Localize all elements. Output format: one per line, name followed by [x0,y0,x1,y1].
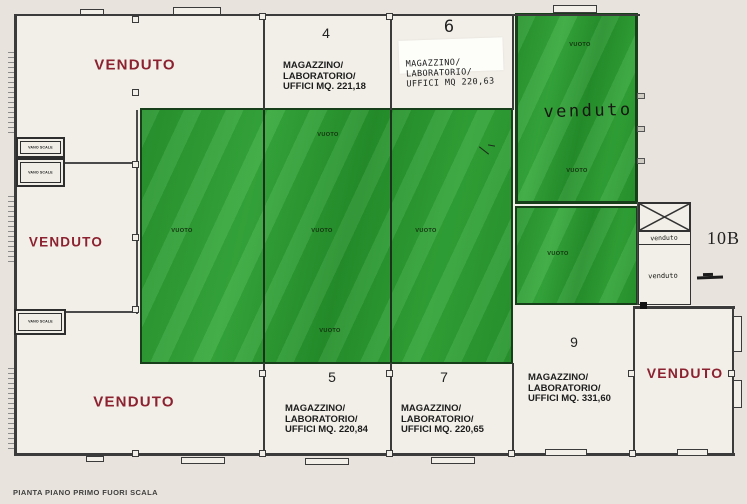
unit-9-number: 9 [570,334,578,350]
unit-4-line3: UFFICI MQ. 221,18 [283,82,366,93]
unit-5-line3: UFFICI MQ. 220,84 [285,425,368,436]
sold-label-mid-left: VENDUTO [29,235,103,250]
wall-left-room-divider [64,311,139,313]
vuoto-label: VUOTO [317,132,338,138]
wall-green-divider-right [390,110,392,362]
pilaster [132,161,139,168]
pilaster [629,450,636,457]
wall-bottom-right-room-top [633,306,735,309]
sold-box-1-label: venduto [650,234,678,243]
pilaster [728,370,735,377]
pilaster [132,89,139,96]
unit-6-description: MAGAZZINO/ LABORATORIO/ UFFICI MQ 220,63 [406,56,495,89]
window-bottom-3 [305,458,349,465]
wall-unit6-right [512,14,514,110]
wall-unit4-left [263,14,265,110]
wall-bottom [14,453,735,456]
vuoto-label: VUOTO [415,228,436,234]
stairwell-box-3: VANO SCALE [14,309,66,335]
unit-4-number: 4 [322,25,330,41]
stairwell-box-2: VANO SCALE [16,158,65,187]
wall-tab-1 [637,93,645,99]
unit-6-number: 6 [444,17,454,37]
stairwell-label-1: VANO SCALE [28,146,53,150]
pilaster [259,13,266,20]
green-highlight-central-block [140,108,513,364]
unit-9-line1: MAGAZZINO/ [528,373,611,384]
sold-label-bottom-left: VENDUTO [93,394,174,411]
stairwell-box-1: VANO SCALE [16,137,65,158]
green-highlight-right-column [515,206,638,305]
vuoto-label: VUOTO [311,228,332,234]
wall-green-divider-left [263,110,265,362]
wall-junction-mark [640,302,647,309]
window-right-1 [733,316,742,352]
pilaster [132,450,139,457]
sold-label-top-left: VENDUTO [94,57,175,74]
sold-label-handwritten-top-right: venduto [543,100,633,122]
unit-7-number: 7 [440,369,448,385]
wall-stairwell-divider [64,162,138,164]
window-bottom-6 [677,449,708,456]
unit-9-description: MAGAZZINO/ LABORATORIO/ UFFICI MQ. 331,6… [528,373,611,405]
pilaster [386,370,393,377]
wall-unit9-right [633,306,635,454]
vuoto-label: VUOTO [319,328,340,334]
unit-7-line1: MAGAZZINO/ [401,404,484,415]
vuoto-label: VUOTO [547,251,568,257]
unit-4-line1: MAGAZZINO/ [283,61,366,72]
unit-7-description: MAGAZZINO/ LABORATORIO/ UFFICI MQ. 220,6… [401,404,484,436]
wall-left-strip [136,110,138,314]
unit-7-line3: UFFICI MQ. 220,65 [401,425,484,436]
vuoto-label: VUOTO [569,42,590,48]
window-top-2 [173,7,221,15]
pilaster [386,450,393,457]
pilaster [132,234,139,241]
stairwell-label-3: VANO SCALE [28,320,53,324]
pilaster [508,450,515,457]
external-unit-label: 10B [707,228,740,249]
stairwell-label-2: VANO SCALE [28,171,53,175]
window-bottom-4 [431,457,475,464]
plan-caption: PIANTA PIANO PRIMO FUORI SCALA [13,488,158,497]
sold-box-2-label: venduto [648,272,678,281]
pilaster [628,370,635,377]
unit-5-line1: MAGAZZINO/ [285,404,368,415]
crosshatch-x-icon [640,204,689,230]
window-right-2 [733,380,742,408]
unit-9-line3: UFFICI MQ. 331,60 [528,394,611,405]
pilaster [259,450,266,457]
window-top-1 [80,9,104,15]
floor-plan-canvas: venduto venduto VANO SCALE VANO SCALE VA… [0,0,747,504]
window-bottom-1 [86,456,104,462]
unit-5-number: 5 [328,369,336,385]
crosshatch-shaft [638,202,691,232]
wall-left [14,14,17,455]
vuoto-label: VUOTO [566,168,587,174]
pilaster [132,16,139,23]
ink-smudge [697,276,723,279]
ink-smudge-2 [703,273,713,276]
wall-unit7-right [512,363,514,454]
wall-top [14,14,640,16]
window-bottom-2 [181,457,225,464]
window-top-3 [553,5,597,13]
wall-unit4-right [390,14,392,110]
unit-4-description: MAGAZZINO/ LABORATORIO/ UFFICI MQ. 221,1… [283,61,366,93]
pilaster [386,13,393,20]
wall-tab-3 [637,158,645,164]
unit-5-description: MAGAZZINO/ LABORATORIO/ UFFICI MQ. 220,8… [285,404,368,436]
sold-label-bottom-right: VENDUTO [647,365,724,381]
window-bottom-5 [545,449,587,456]
pilaster [259,370,266,377]
pilaster [132,306,139,313]
wall-tab-2 [637,126,645,132]
vuoto-label: VUOTO [171,228,192,234]
